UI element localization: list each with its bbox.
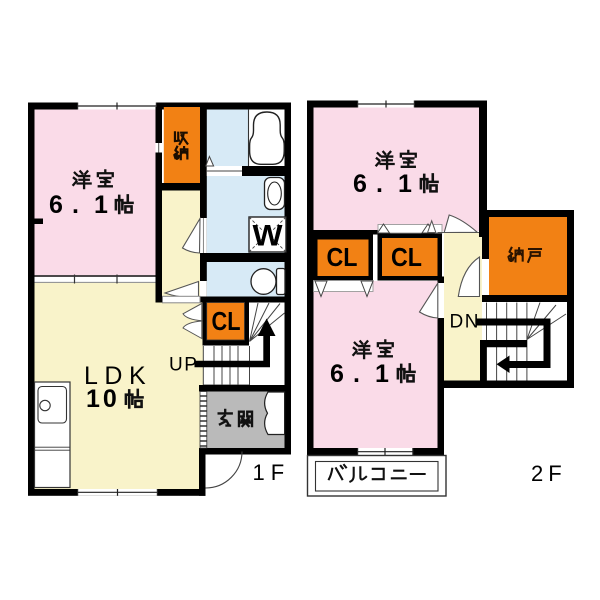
svg-text:2F: 2F (531, 461, 567, 486)
svg-text:6: 6 (330, 360, 344, 388)
svg-text:10: 10 (86, 385, 120, 413)
svg-text:DN: DN (450, 312, 480, 333)
svg-text:1: 1 (94, 191, 108, 219)
svg-text:6: 6 (49, 191, 63, 219)
svg-text:.: . (376, 170, 383, 198)
svg-text:1: 1 (398, 170, 412, 198)
svg-text:CL: CL (212, 306, 241, 336)
svg-text:CL: CL (327, 242, 358, 272)
svg-text:UP: UP (169, 355, 198, 376)
svg-text:.: . (72, 191, 79, 219)
svg-text:.: . (353, 360, 360, 388)
svg-text:1F: 1F (253, 460, 291, 485)
svg-text:CL: CL (391, 242, 422, 272)
svg-text:1: 1 (375, 360, 389, 388)
svg-text:6: 6 (353, 170, 367, 198)
svg-text:W: W (253, 220, 284, 253)
